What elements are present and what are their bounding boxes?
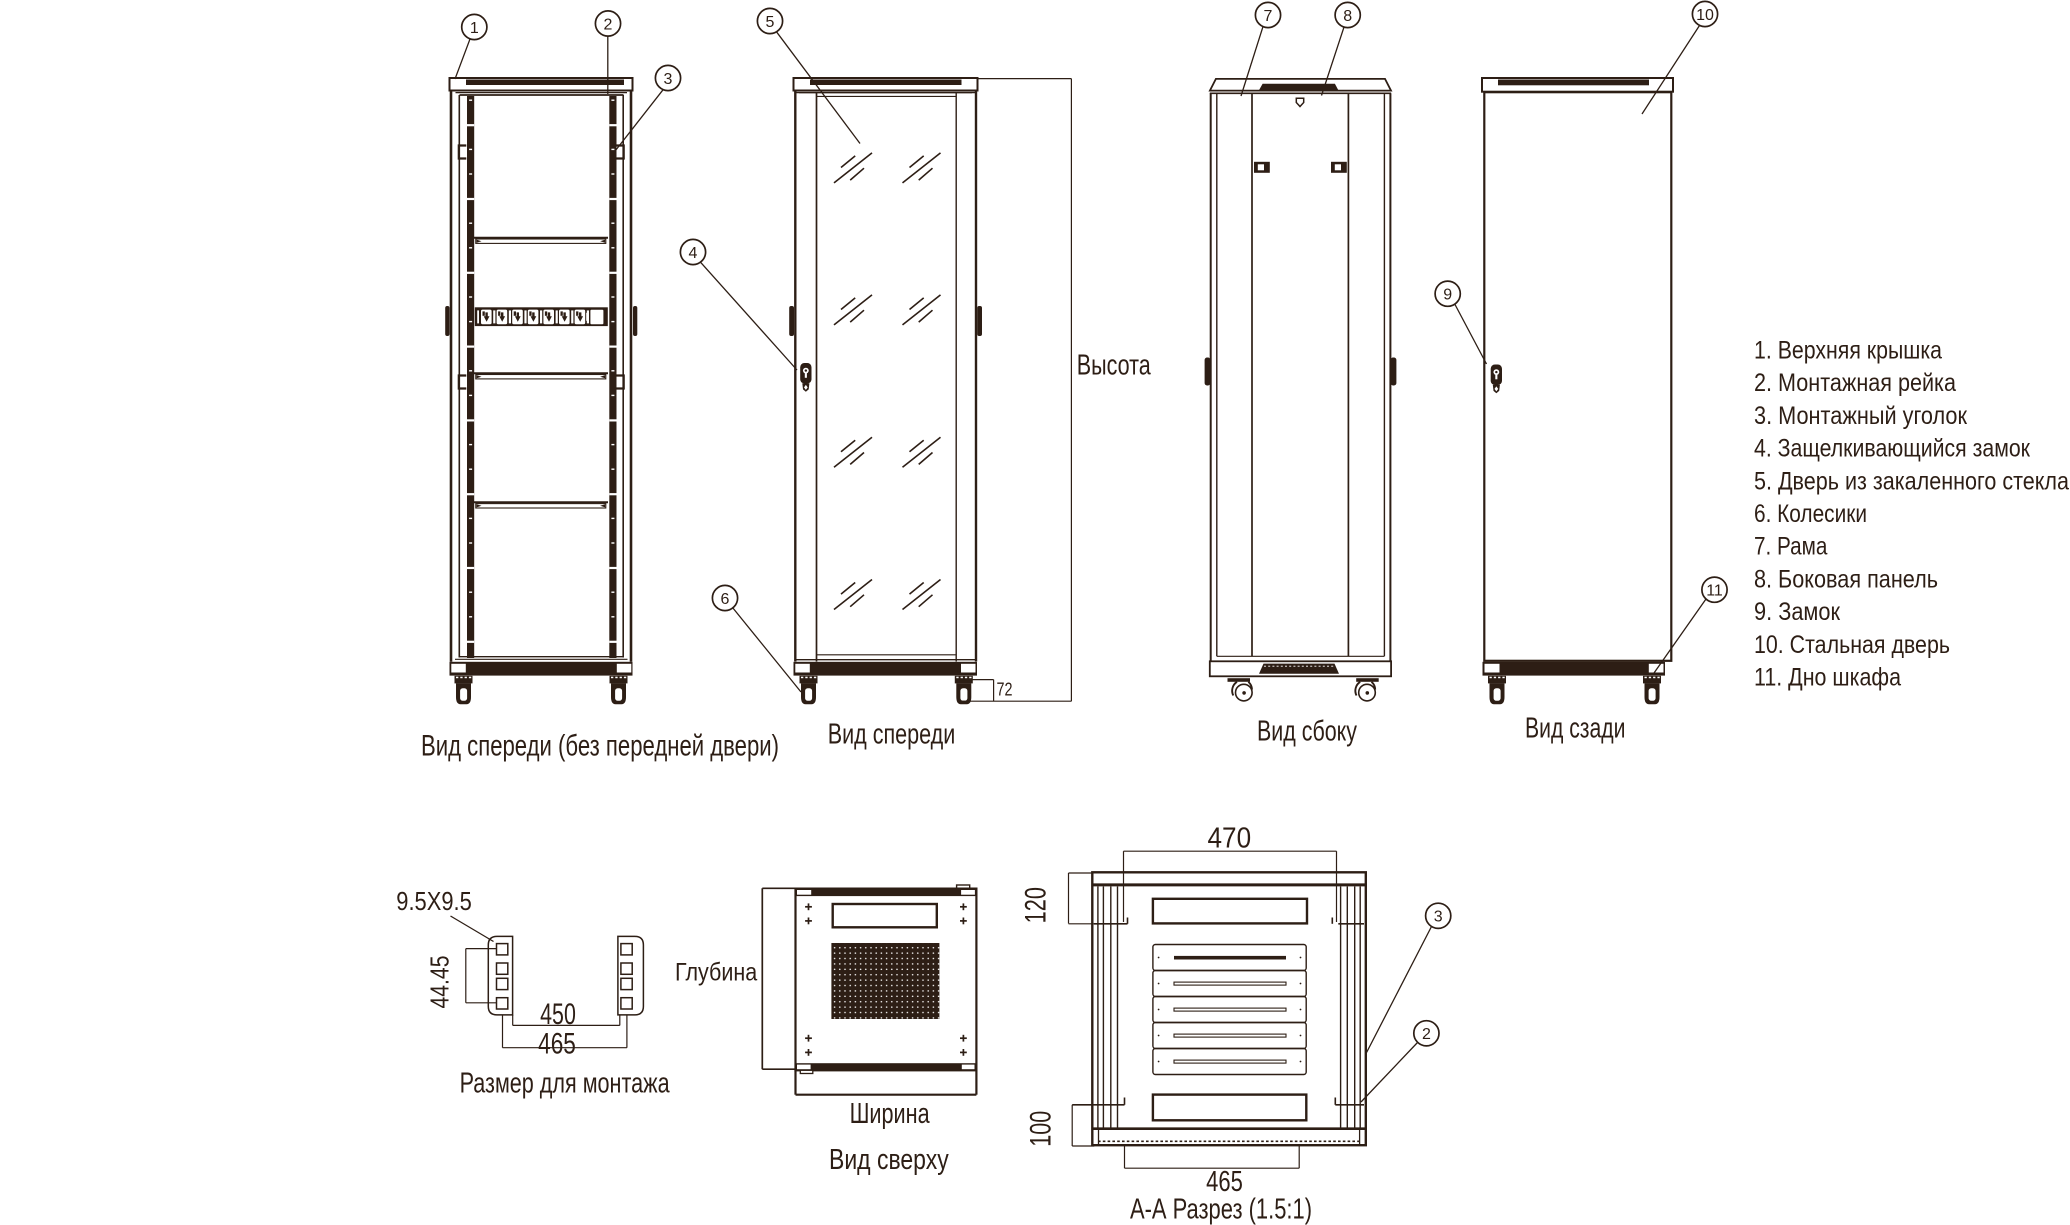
svg-text:Вид спереди (без передней двер: Вид спереди (без передней двери) — [421, 730, 779, 763]
svg-text:465: 465 — [538, 1028, 576, 1061]
svg-text:Размер для монтажа: Размер для монтажа — [460, 1068, 671, 1100]
svg-text:10. Стальная дверь: 10. Стальная дверь — [1754, 631, 1950, 659]
svg-text:4. Защелкивающийся замок: 4. Защелкивающийся замок — [1754, 435, 2031, 463]
svg-text:Вид сбоку: Вид сбоку — [1257, 716, 1357, 748]
svg-text:2: 2 — [1422, 1026, 1431, 1043]
svg-text:Ширина: Ширина — [850, 1098, 931, 1130]
svg-text:6. Колесики: 6. Колесики — [1754, 500, 1867, 528]
svg-text:9.5X9.5: 9.5X9.5 — [396, 886, 472, 916]
svg-text:120: 120 — [1020, 887, 1053, 923]
svg-text:8: 8 — [1343, 8, 1352, 25]
svg-text:9: 9 — [1443, 287, 1452, 304]
svg-text:44.45: 44.45 — [425, 956, 455, 1009]
svg-text:3: 3 — [1434, 909, 1443, 926]
svg-text:Вид спереди: Вид спереди — [828, 719, 956, 751]
svg-text:9. Замок: 9. Замок — [1754, 598, 1841, 626]
svg-text:2. Монтажная рейка: 2. Монтажная рейка — [1754, 369, 1956, 397]
svg-text:8. Боковая панель: 8. Боковая панель — [1754, 565, 1938, 593]
svg-text:11. Дно шкафа: 11. Дно шкафа — [1754, 664, 1901, 692]
svg-text:2: 2 — [604, 16, 613, 33]
svg-text:4: 4 — [689, 245, 698, 262]
svg-text:6: 6 — [721, 591, 730, 608]
svg-text:11: 11 — [1706, 583, 1723, 600]
svg-text:Вид сверху: Вид сверху — [829, 1144, 949, 1176]
svg-text:7: 7 — [1264, 8, 1273, 25]
svg-text:1: 1 — [470, 20, 479, 37]
svg-text:72: 72 — [997, 679, 1013, 699]
svg-text:7. Рама: 7. Рама — [1754, 533, 1827, 561]
svg-text:Глубина: Глубина — [675, 959, 757, 987]
svg-text:100: 100 — [1025, 1111, 1058, 1147]
svg-text:Вид сзади: Вид сзади — [1525, 713, 1626, 745]
svg-text:5: 5 — [766, 14, 775, 31]
svg-text:450: 450 — [540, 998, 576, 1031]
svg-text:10: 10 — [1696, 7, 1714, 24]
svg-text:3. Монтажный уголок: 3. Монтажный уголок — [1754, 402, 1968, 430]
svg-text:А-А Разрез (1.5:1): А-А Разрез (1.5:1) — [1130, 1194, 1312, 1225]
svg-text:Высота: Высота — [1077, 349, 1152, 381]
svg-text:1. Верхняя крышка: 1. Верхняя крышка — [1754, 337, 1942, 365]
svg-text:5. Дверь из закаленного стекла: 5. Дверь из закаленного стекла — [1754, 467, 2069, 495]
svg-text:3: 3 — [664, 71, 673, 88]
svg-text:470: 470 — [1208, 823, 1252, 855]
